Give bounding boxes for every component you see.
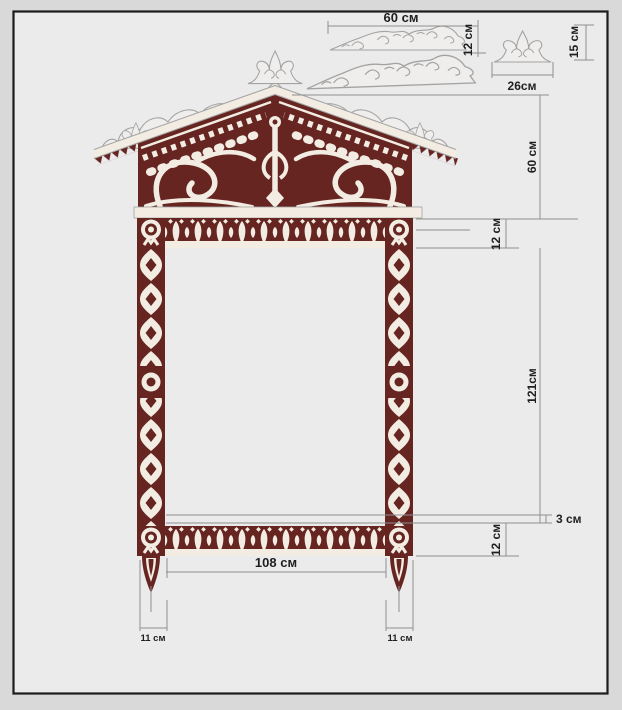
dim-label-detail-height: 12 см <box>461 24 475 56</box>
bottom-band <box>137 526 413 556</box>
dim-label-pediment-height: 60 см <box>525 141 539 173</box>
dim-label-sill-height: 12 см <box>489 524 503 556</box>
dim-label-column-length: 121см <box>525 368 539 404</box>
dim-label-left-column-width: 11 см <box>141 633 166 644</box>
dim-label-opening-width: 108 см <box>255 555 297 570</box>
dim-label-detail-width: 60 см <box>384 10 419 25</box>
right-column <box>385 248 413 526</box>
dim-label-right-column-width: 11 см <box>388 633 413 644</box>
top-band <box>137 218 413 248</box>
dim-label-sill-offset: 3 см <box>556 512 582 526</box>
blueprint-canvas: 60 см 12 см 15 см 26см 60 см 12 см 121см… <box>0 0 622 710</box>
left-column <box>137 248 165 526</box>
dim-label-finial-height: 15 см <box>567 26 581 58</box>
dim-label-finial-width: 26см <box>508 79 537 93</box>
pediment-shelf <box>134 207 422 218</box>
dim-label-frieze-height: 12 см <box>489 218 503 250</box>
